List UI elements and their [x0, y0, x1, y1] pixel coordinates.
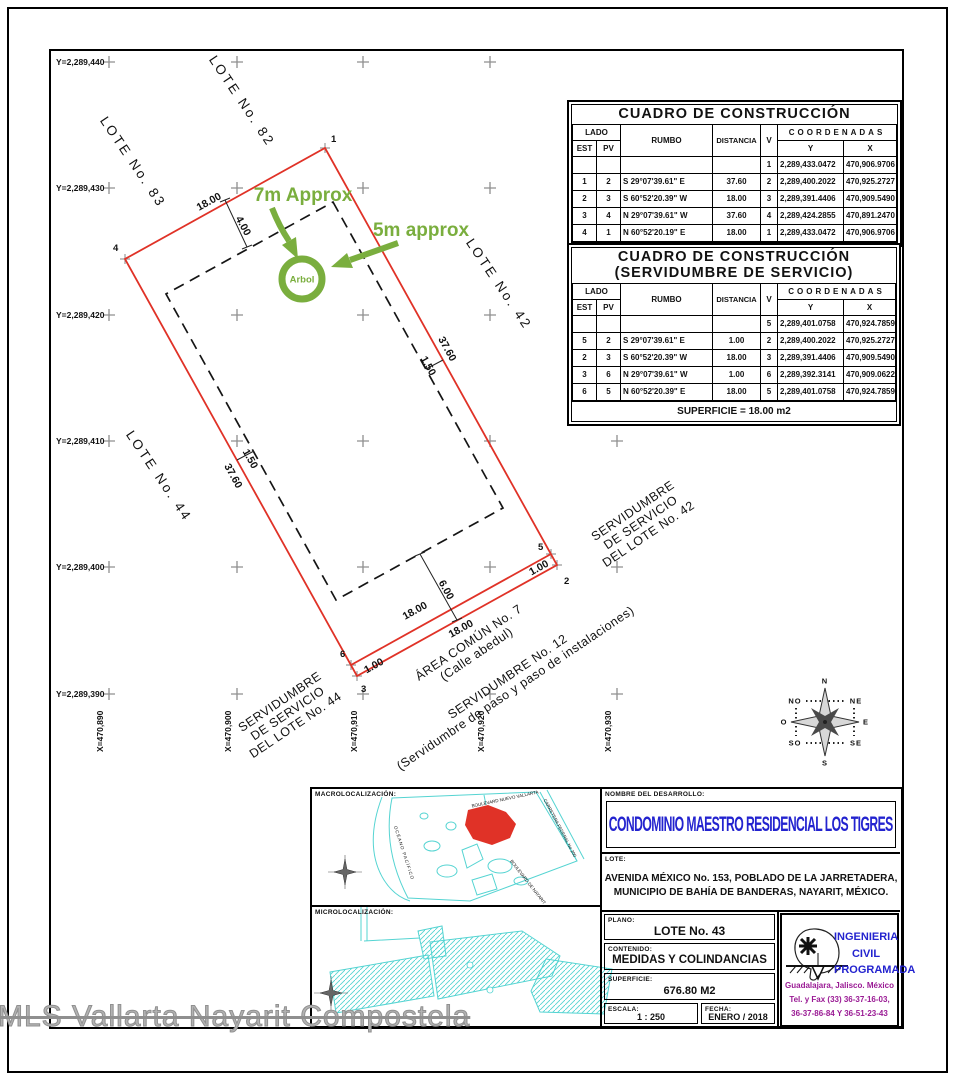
annotation-7m: 7m Approx: [254, 185, 353, 207]
grid-x-label: X=470,890: [95, 711, 105, 752]
survey-plan-sheet: Y=2,289,440 Y=2,289,430 Y=2,289,420 Y=2,…: [0, 0, 955, 1080]
lote-address-line1: AVENIDA MÉXICO No. 153, POBLADO DE LA JA…: [602, 872, 900, 886]
table-subtitle: (SERVIDUMBRE DE SERVICIO): [572, 266, 896, 282]
compass-o: O: [781, 718, 788, 727]
lot-boundary: [125, 148, 557, 676]
vertex-label: 5: [538, 542, 543, 553]
data-column: PLANO: LOTE No. 43 CONTENIDO: MEDIDAS Y …: [602, 912, 779, 1028]
vertex-label: 3: [361, 684, 366, 695]
superficie-value: 676.80 M2: [605, 985, 774, 997]
grid-y-label: Y=2,289,440: [56, 57, 104, 67]
grid-y-label: Y=2,289,420: [56, 310, 104, 320]
plano-value: LOTE No. 43: [605, 924, 774, 938]
lote-address-line2: MUNICIPIO DE BAHÍA DE BANDERAS, NAYARIT,…: [602, 886, 900, 900]
compass-s: S: [822, 759, 828, 768]
fecha-value: ENERO / 2018: [702, 1012, 774, 1022]
table-row: 12,289,433.0472470,906.9706: [573, 156, 897, 173]
easement-table: CUADRO DE CONSTRUCCIÓN (SERVIDUMBRE DE S…: [567, 243, 901, 426]
table-title: CUADRO DE CONSTRUCCIÓN: [572, 105, 897, 124]
col-distancia: DISTANCIA: [713, 124, 761, 156]
grid-y-label: Y=2,289,410: [56, 436, 104, 446]
surface-note: SUPERFICIE = 18.00 m2: [572, 401, 896, 421]
col-distancia: DISTANCIA: [713, 283, 761, 315]
arrow-7m: [272, 208, 289, 241]
col-rumbo: RUMBO: [621, 124, 713, 156]
company-name-line2: CIVIL: [834, 946, 898, 963]
fecha-cell: FECHA: ENERO / 2018: [701, 1003, 775, 1024]
arrow-5m: [350, 243, 398, 260]
development-name: CONDOMINIO MAESTRO RESIDENCIAL LOS TIGRE…: [609, 813, 893, 837]
table-row: 65N 60°52'20.39" E18.0052,289,401.075847…: [573, 383, 896, 400]
company-phone-line2: 36-37-86-84 Y 36-51-23-43: [782, 1009, 897, 1018]
grid-y-label: Y=2,289,390: [56, 689, 104, 699]
macro-label: MACROLOCALIZACIÓN:: [315, 791, 396, 798]
arrow-5m-head: [331, 253, 353, 268]
vertex-label: 6: [340, 649, 345, 660]
table-row: 52,289,401.0758470,924.7859: [573, 315, 896, 332]
superficie-cell: SUPERFICIE: 676.80 M2: [604, 973, 775, 1000]
contenido-value: MEDIDAS Y COLINDANCIAS: [605, 954, 774, 966]
grid-y-label: Y=2,289,430: [56, 183, 104, 193]
grid-crosses: [103, 56, 623, 700]
compass-ne: NE: [850, 697, 862, 706]
company-cell: INGENIERIA CIVIL PROGRAMADA Guadalajara,…: [779, 912, 900, 1028]
development-name-label: NOMBRE DEL DESARROLLO:: [605, 791, 705, 798]
col-pv: PV: [597, 140, 621, 156]
col-est: EST: [573, 140, 597, 156]
col-v: V: [761, 124, 778, 156]
col-x: X: [844, 140, 897, 156]
col-y: Y: [778, 140, 844, 156]
superficie-label: SUPERFICIE:: [608, 976, 652, 983]
contenido-label: CONTENIDO:: [608, 946, 652, 953]
annotation-5m: 5m approx: [373, 220, 469, 242]
plano-cell: PLANO: LOTE No. 43: [604, 914, 775, 940]
company-name-line1: INGENIERIA: [834, 929, 898, 946]
table-title: CUADRO DE CONSTRUCCIÓN: [572, 250, 896, 266]
grid-x-label: X=470,910: [349, 711, 359, 752]
table-row: 23S 60°52'20.39" W18.0032,289,391.440647…: [573, 190, 897, 207]
plano-label: PLANO:: [608, 917, 635, 924]
setback-line: [166, 202, 503, 600]
lote-label: LOTE:: [605, 856, 626, 863]
col-coordenadas: COORDENADAS: [778, 124, 897, 140]
construction-table: CUADRO DE CONSTRUCCIÓN LADO RUMBO DISTAN…: [567, 100, 902, 247]
watermark: MLS Vallarta Nayarit Compostela: [0, 1000, 470, 1034]
company-phone-line1: Tel. y Fax (33) 36-37-16-03,: [782, 995, 897, 1004]
grid-x-label: X=470,900: [223, 711, 233, 752]
compass-no: NO: [788, 697, 801, 706]
title-block: MACROLOCALIZACIÓN: MICROLOCALIZACIÓN: NO…: [310, 787, 903, 1028]
compass-e: E: [863, 718, 869, 727]
col-lado: LADO: [573, 124, 621, 140]
col-coordenadas: COORDENADAS: [778, 283, 896, 299]
table-row: 12S 29°07'39.61" E37.6022,289,400.202247…: [573, 173, 897, 190]
table-row: 52S 29°07'39.61" E1.0022,289,400.2022470…: [573, 332, 896, 349]
tree-label: Arbol: [290, 275, 315, 286]
col-lado: LADO: [573, 283, 621, 299]
contenido-cell: CONTENIDO: MEDIDAS Y COLINDANCIAS: [604, 943, 775, 970]
company-city: Guadalajara, Jalisco. México: [782, 981, 897, 990]
compass-so: SO: [789, 739, 802, 748]
compass-se: SE: [850, 739, 862, 748]
col-v: V: [761, 283, 778, 315]
table-row: 41N 60°52'20.19" E18.0012,289,433.047247…: [573, 224, 897, 241]
compass-n: N: [822, 677, 828, 686]
company-name-line3: PROGRAMADA: [834, 962, 898, 979]
col-x: X: [844, 299, 896, 315]
lote-cell: LOTE: AVENIDA MÉXICO No. 153, POBLADO DE…: [602, 854, 900, 912]
grid-y-label: Y=2,289,400: [56, 562, 104, 572]
escala-cell: ESCALA: 1 : 250: [604, 1003, 698, 1024]
table-row: 36N 29°07'39.61" W1.0062,289,392.3141470…: [573, 366, 896, 383]
col-y: Y: [778, 299, 844, 315]
col-rumbo: RUMBO: [621, 283, 713, 315]
vertex-label: 1: [331, 134, 336, 145]
vertex-label: 4: [113, 243, 118, 254]
development-name-cell: NOMBRE DEL DESARROLLO: CONDOMINIO MAESTR…: [602, 789, 900, 854]
table-row: 34N 29°07'39.61" W37.6042,289,424.285547…: [573, 207, 897, 224]
col-est: EST: [573, 299, 597, 315]
table-row: 23S 60°52'20.39" W18.0032,289,391.440647…: [573, 349, 896, 366]
vertex-crosses: [120, 143, 562, 681]
vertex-label: 2: [564, 576, 569, 587]
micro-label: MICROLOCALIZACIÓN:: [315, 909, 393, 916]
macro-panel: MACROLOCALIZACIÓN:: [312, 789, 602, 907]
col-pv: PV: [597, 299, 621, 315]
grid-x-label: X=470,930: [603, 711, 613, 752]
escala-value: 1 : 250: [605, 1012, 697, 1022]
